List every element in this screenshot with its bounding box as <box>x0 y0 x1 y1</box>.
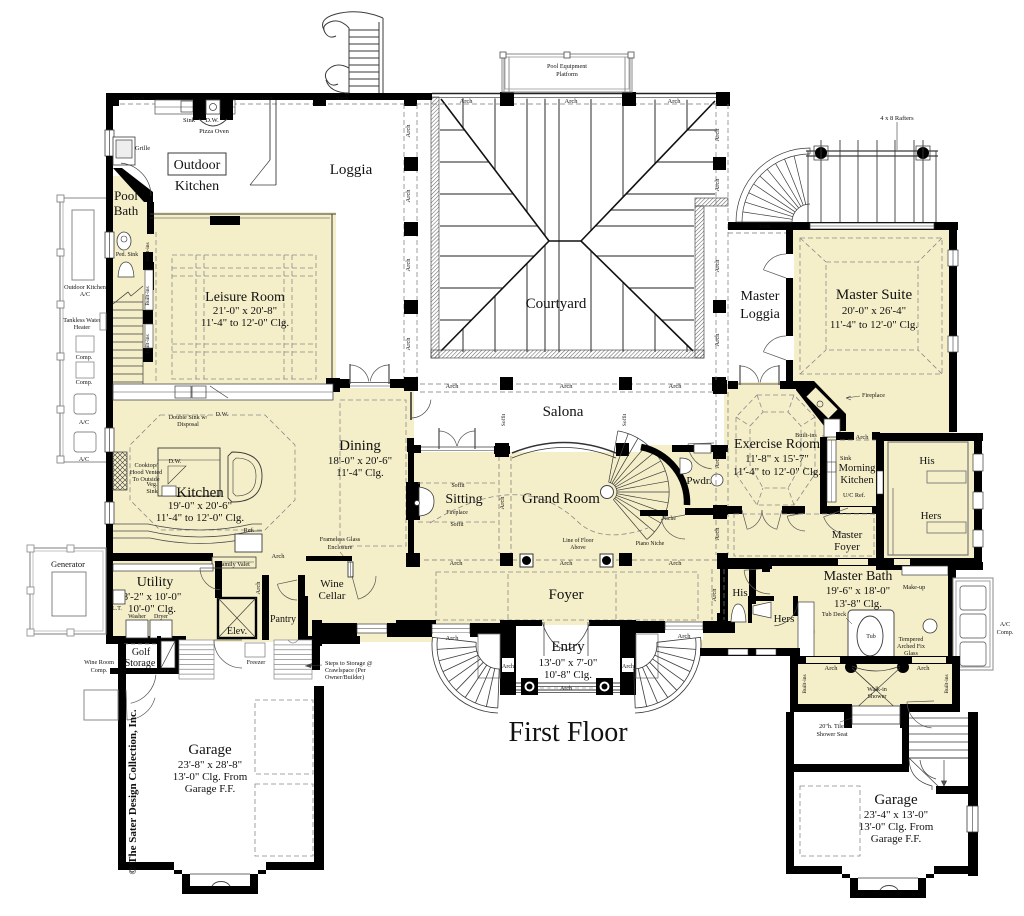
svg-text:Comp.: Comp. <box>997 629 1014 636</box>
svg-text:Built-ins: Built-ins <box>145 242 151 261</box>
svg-text:Walk-in: Walk-in <box>867 686 887 693</box>
svg-text:His: His <box>732 587 747 599</box>
svg-text:11'-4" Clg.: 11'-4" Clg. <box>336 467 384 479</box>
svg-text:D.W.: D.W. <box>205 117 219 124</box>
svg-text:Sitting: Sitting <box>445 492 482 507</box>
svg-text:Ped. Sink: Ped. Sink <box>116 252 138 258</box>
svg-text:Platform: Platform <box>556 71 578 78</box>
svg-text:Arch: Arch <box>499 496 506 510</box>
svg-text:Exercise Room: Exercise Room <box>734 437 820 452</box>
svg-text:23'-8" x 28'-8": 23'-8" x 28'-8" <box>178 759 242 771</box>
svg-text:11'-8" x 15'-7": 11'-8" x 15'-7" <box>745 453 809 465</box>
svg-text:Tub Deck: Tub Deck <box>822 611 847 618</box>
svg-text:Pwdr.: Pwdr. <box>686 475 712 487</box>
svg-text:Arch: Arch <box>825 665 839 672</box>
svg-text:Arch: Arch <box>560 686 572 692</box>
svg-text:Glass: Glass <box>904 650 918 657</box>
svg-text:L.T.: L.T. <box>112 606 122 612</box>
svg-text:Arch: Arch <box>446 635 460 642</box>
svg-text:Soffit: Soffit <box>621 413 628 426</box>
svg-text:Arch: Arch <box>714 259 721 273</box>
svg-text:D.W.: D.W. <box>169 458 182 465</box>
svg-text:A/C: A/C <box>79 419 89 426</box>
svg-text:Arch: Arch <box>260 95 274 102</box>
svg-text:21'-0" x 20'-8": 21'-0" x 20'-8" <box>213 305 277 317</box>
svg-text:A/C: A/C <box>1000 621 1010 628</box>
svg-text:Enclosure: Enclosure <box>328 544 353 551</box>
svg-text:Arch: Arch <box>669 560 683 567</box>
svg-text:Loggia: Loggia <box>740 307 780 322</box>
svg-text:13'-8" Clg.: 13'-8" Clg. <box>834 598 882 610</box>
svg-text:Kitchen: Kitchen <box>175 179 219 194</box>
svg-text:Outdoor Kitchen: Outdoor Kitchen <box>64 284 106 291</box>
svg-text:Sink: Sink <box>146 488 158 495</box>
svg-text:Storage: Storage <box>125 658 156 669</box>
svg-text:To Outside: To Outside <box>132 476 159 483</box>
svg-text:His: His <box>919 455 934 467</box>
svg-text:Arch: Arch <box>622 664 634 670</box>
svg-text:Fireplace: Fireplace <box>446 510 468 516</box>
svg-text:U/C Ref.: U/C Ref. <box>843 492 866 499</box>
svg-text:© The Sater Design Collection,: © The Sater Design Collection, Inc. <box>127 709 139 874</box>
svg-text:Crawlspace (Per: Crawlspace (Per <box>325 667 366 674</box>
svg-text:Hood Vented: Hood Vented <box>130 469 163 476</box>
svg-text:Arch: Arch <box>502 664 514 670</box>
svg-text:Heater: Heater <box>74 324 91 331</box>
svg-text:Pool Equipment: Pool Equipment <box>547 63 587 70</box>
svg-text:8'-2" x 10'-0": 8'-2" x 10'-0" <box>123 591 182 603</box>
svg-text:18'-0" x 20'-6": 18'-0" x 20'-6" <box>328 455 392 467</box>
svg-text:Courtyard: Courtyard <box>526 296 587 312</box>
svg-text:Make-up: Make-up <box>903 584 925 591</box>
svg-text:20"h. Tiled: 20"h. Tiled <box>819 723 848 730</box>
svg-text:Arch: Arch <box>405 258 412 272</box>
svg-text:Salona: Salona <box>543 404 584 420</box>
svg-text:Arch: Arch <box>336 95 350 102</box>
svg-text:Entry: Entry <box>551 639 585 655</box>
svg-text:Pantry: Pantry <box>270 614 296 625</box>
svg-text:Kitchen: Kitchen <box>840 475 874 486</box>
svg-text:Grille: Grille <box>135 145 150 152</box>
svg-text:19'-0" x 20'-6": 19'-0" x 20'-6" <box>168 500 232 512</box>
svg-text:Pool: Pool <box>114 188 138 203</box>
svg-text:Built-ins: Built-ins <box>145 286 151 305</box>
svg-text:11'-4" to 12'-0" Clg.: 11'-4" to 12'-0" Clg. <box>156 512 245 524</box>
svg-text:Foyer: Foyer <box>834 541 860 553</box>
svg-text:Arch: Arch <box>714 128 721 142</box>
svg-text:Arch: Arch <box>714 527 721 541</box>
svg-text:13'-0" x 7'-0": 13'-0" x 7'-0" <box>539 657 598 669</box>
svg-text:Built-ins: Built-ins <box>944 674 950 693</box>
svg-text:Piano Niche: Piano Niche <box>636 541 665 547</box>
svg-text:Tub: Tub <box>866 634 875 640</box>
svg-text:Arch: Arch <box>450 560 464 567</box>
svg-text:Garage F.F.: Garage F.F. <box>185 783 236 795</box>
svg-text:Ref.: Ref. <box>244 527 255 534</box>
svg-text:Garage: Garage <box>874 792 918 808</box>
svg-text:Tempered: Tempered <box>899 636 925 643</box>
svg-text:Above: Above <box>570 545 586 551</box>
svg-text:Hers: Hers <box>921 510 942 522</box>
svg-text:Line of Floor: Line of Floor <box>563 537 594 544</box>
svg-text:Garage: Garage <box>188 742 232 758</box>
svg-text:Arch: Arch <box>758 223 772 230</box>
svg-text:Shower Seat: Shower Seat <box>816 731 847 738</box>
svg-text:Garage F.F.: Garage F.F. <box>871 833 922 845</box>
svg-text:Comp.: Comp. <box>76 379 93 386</box>
svg-text:Soffit: Soffit <box>500 413 507 426</box>
svg-text:Utility: Utility <box>137 575 174 590</box>
svg-text:Arch: Arch <box>714 178 721 192</box>
svg-text:Tankless Water: Tankless Water <box>63 317 101 324</box>
svg-text:Arch: Arch <box>405 189 412 203</box>
svg-text:11'-4" to 12'-0" Clg.: 11'-4" to 12'-0" Clg. <box>733 466 822 478</box>
svg-text:Disposal: Disposal <box>177 421 199 428</box>
svg-text:Arched Fix: Arched Fix <box>897 643 926 650</box>
svg-text:Cellar: Cellar <box>319 590 346 602</box>
svg-text:Elev.: Elev. <box>227 626 247 637</box>
svg-text:Arch: Arch <box>560 560 574 567</box>
svg-text:Built-ins: Built-ins <box>802 674 808 693</box>
svg-text:Outdoor: Outdoor <box>174 158 221 173</box>
svg-text:4 x 8 Rafters: 4 x 8 Rafters <box>880 115 914 122</box>
svg-text:Bath: Bath <box>114 203 139 218</box>
svg-text:D.W.: D.W. <box>216 411 229 418</box>
svg-text:A/C: A/C <box>80 291 90 298</box>
svg-text:Master: Master <box>832 529 863 541</box>
svg-text:Arch: Arch <box>272 553 286 560</box>
svg-text:Grand Room: Grand Room <box>522 491 600 507</box>
svg-text:Built-ins: Built-ins <box>145 334 151 353</box>
svg-text:Master Suite: Master Suite <box>836 287 913 303</box>
svg-text:Arch: Arch <box>405 124 412 138</box>
svg-text:Soffit: Soffit <box>451 482 464 489</box>
svg-text:Washer: Washer <box>128 614 146 620</box>
svg-text:Arch: Arch <box>669 383 683 390</box>
svg-text:Generator: Generator <box>51 559 85 569</box>
svg-text:11'-4" to 12'-0" Clg.: 11'-4" to 12'-0" Clg. <box>201 317 290 329</box>
svg-text:Cooktop/: Cooktop/ <box>134 462 157 469</box>
svg-text:Shower: Shower <box>868 693 887 700</box>
svg-text:Comp.: Comp. <box>91 667 108 674</box>
svg-text:Wine: Wine <box>320 578 343 590</box>
svg-text:Arch: Arch <box>132 95 146 102</box>
svg-text:Owner/Builder): Owner/Builder) <box>325 674 364 681</box>
svg-text:Arch: Arch <box>711 588 718 602</box>
svg-text:Built-ins: Built-ins <box>795 432 817 439</box>
svg-text:Arch: Arch <box>560 383 574 390</box>
svg-text:Leisure Room: Leisure Room <box>205 290 285 305</box>
svg-text:23'-4" x 13'-0": 23'-4" x 13'-0" <box>864 809 928 821</box>
svg-text:Family Valet: Family Valet <box>218 561 250 568</box>
svg-text:Freezer: Freezer <box>247 659 266 666</box>
svg-text:19'-6" x 18'-0": 19'-6" x 18'-0" <box>826 585 890 597</box>
svg-text:Master: Master <box>741 289 780 304</box>
svg-text:13'-0" Clg. From: 13'-0" Clg. From <box>859 821 934 833</box>
svg-text:Fireplace: Fireplace <box>862 392 885 399</box>
svg-text:Pizza Oven: Pizza Oven <box>199 128 230 135</box>
svg-text:Soffit: Soffit <box>450 521 463 528</box>
svg-text:Wine Room: Wine Room <box>84 659 114 666</box>
svg-text:Sink: Sink <box>840 455 852 462</box>
svg-text:Arch: Arch <box>405 337 412 351</box>
svg-text:Dining: Dining <box>339 438 381 454</box>
svg-text:Loggia: Loggia <box>330 162 373 178</box>
svg-text:10'-8" Clg.: 10'-8" Clg. <box>544 669 592 681</box>
svg-text:Frameless Glass: Frameless Glass <box>320 536 361 543</box>
svg-text:Foyer: Foyer <box>549 587 584 603</box>
svg-text:Dryer: Dryer <box>154 614 168 620</box>
svg-text:11'-4" to 12'-0" Clg.: 11'-4" to 12'-0" Clg. <box>830 319 919 331</box>
svg-text:Arch: Arch <box>714 333 721 347</box>
svg-text:Arch: Arch <box>917 665 931 672</box>
svg-text:13'-0" Clg. From: 13'-0" Clg. From <box>173 771 248 783</box>
svg-text:Morning: Morning <box>839 463 877 474</box>
svg-text:Arch: Arch <box>714 455 721 469</box>
svg-text:First Floor: First Floor <box>508 717 628 748</box>
svg-text:Golf: Golf <box>132 647 151 658</box>
svg-text:Master Bath: Master Bath <box>824 569 893 584</box>
svg-text:Arch: Arch <box>255 581 262 595</box>
svg-text:Kitchen: Kitchen <box>176 485 224 501</box>
svg-text:20'-0" x 26'-4": 20'-0" x 26'-4" <box>842 305 906 317</box>
svg-text:A/C: A/C <box>79 456 89 463</box>
svg-text:Steps to Storage @: Steps to Storage @ <box>325 660 373 667</box>
svg-text:Comp.: Comp. <box>76 354 93 361</box>
svg-text:Arch: Arch <box>446 383 460 390</box>
